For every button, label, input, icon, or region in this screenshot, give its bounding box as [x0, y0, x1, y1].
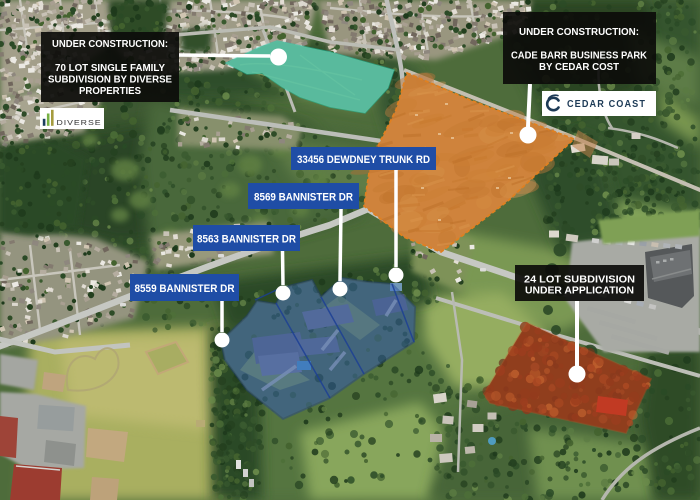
svg-text:8559 BANNISTER DR: 8559 BANNISTER DR — [135, 283, 235, 295]
svg-text:CEDAR COAST: CEDAR COAST — [567, 99, 646, 110]
svg-text:33456 DEWDNEY TRUNK RD: 33456 DEWDNEY TRUNK RD — [297, 154, 430, 166]
svg-text:CADE BARR BUSINESS PARK: CADE BARR BUSINESS PARK — [511, 51, 648, 62]
svg-text:UNDER APPLICATION: UNDER APPLICATION — [525, 285, 634, 297]
svg-text:SUBDIVISION BY DIVERSE: SUBDIVISION BY DIVERSE — [48, 75, 172, 86]
svg-text:UNDER CONSTRUCTION:: UNDER CONSTRUCTION: — [519, 27, 639, 38]
svg-text:8563 BANNISTER DR: 8563 BANNISTER DR — [197, 234, 296, 246]
svg-text:BY CEDAR COST: BY CEDAR COST — [539, 62, 619, 73]
svg-text:DIVERSE: DIVERSE — [57, 118, 102, 127]
svg-text:PROPERTIES: PROPERTIES — [79, 86, 141, 97]
svg-text:8569 BANNISTER DR: 8569 BANNISTER DR — [254, 192, 353, 204]
svg-text:UNDER CONSTRUCTION:: UNDER CONSTRUCTION: — [52, 39, 168, 50]
svg-text:70 LOT SINGLE FAMILY: 70 LOT SINGLE FAMILY — [55, 63, 165, 74]
